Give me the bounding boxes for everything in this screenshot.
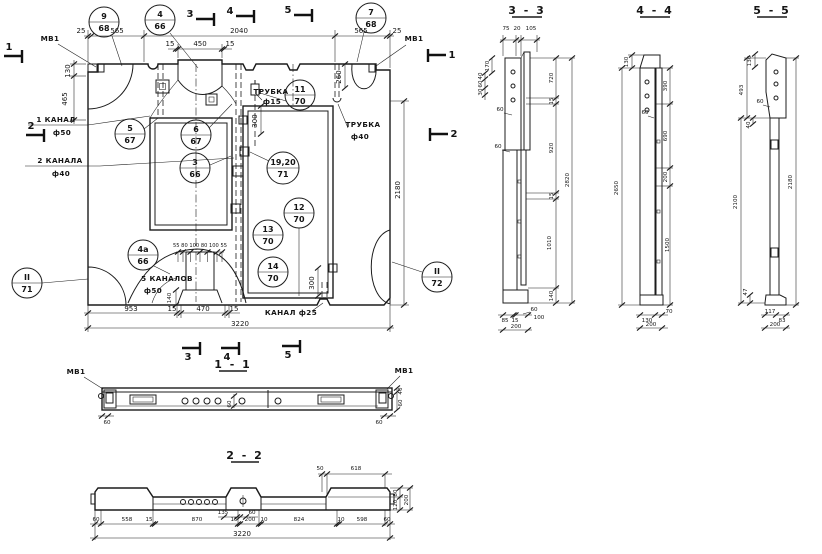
dim-15-d: 15 <box>230 305 239 313</box>
marker-left-1: 1 <box>4 42 22 63</box>
dim: 15 <box>549 97 555 105</box>
dim: 75 <box>502 26 510 32</box>
label-mv1-right: МВ1 <box>395 366 414 375</box>
section-title: 1 - 1 <box>214 358 252 371</box>
section-4-4: 4 - 4 130 60 2650 390 690 200 1500 130 7… <box>614 4 674 331</box>
callout-sheet: 70 <box>267 274 279 283</box>
dim: 30 <box>478 88 484 96</box>
callout-13-70: 13 70 <box>253 220 283 250</box>
callout-sheet: 70 <box>294 97 306 106</box>
callout-num: 6 <box>193 125 199 134</box>
marker-right-2: 2 <box>430 128 458 141</box>
dim: 870 <box>192 517 203 523</box>
dim: 690 <box>663 130 669 141</box>
marker-label: 3 <box>187 9 194 20</box>
callout-6-67: 6 67 <box>181 104 232 150</box>
dim: 2820 <box>565 172 571 187</box>
dim: 60 <box>92 517 100 523</box>
callout-num: II <box>24 273 30 282</box>
callout-sheet: 70 <box>293 215 305 224</box>
dim: 390 <box>663 80 669 91</box>
callout-sheet: 72 <box>431 279 442 288</box>
dim: 824 <box>294 517 305 523</box>
dim-15-a: 15 <box>166 40 175 48</box>
panel-outline <box>88 60 390 305</box>
dim: 15 <box>145 517 153 523</box>
label-mv1-right: МВ1 <box>405 34 424 43</box>
dim: 60 <box>103 420 111 426</box>
dim-2040: 2040 <box>230 27 248 35</box>
section-title: 3 - 3 <box>508 4 546 17</box>
dim-15-b: 15 <box>226 40 235 48</box>
dim: 140 <box>549 290 555 301</box>
plan-view: 55 80 100 80 100 55 140 25 565 2040 565 … <box>4 3 458 363</box>
dim-2180-plan: 2180 <box>394 181 402 199</box>
dim: 60 <box>496 107 504 113</box>
dim: 2180 <box>788 174 794 189</box>
callout-sheet: 66 <box>137 257 149 266</box>
marker-label: 4 <box>227 6 234 17</box>
callout-9-68: 9 68 <box>89 7 122 66</box>
callout-sheet: 66 <box>154 22 166 31</box>
dim-140: 140 <box>167 292 173 303</box>
dim: 10 <box>260 517 268 523</box>
corner-bottom-left <box>88 267 126 305</box>
marker-label: 1 <box>6 42 13 53</box>
marker-label: 2 <box>451 129 458 140</box>
dim-470: 470 <box>196 305 209 313</box>
dim: 60 <box>756 99 764 105</box>
dim: 1010 <box>547 235 553 250</box>
dim: 105 <box>526 26 537 32</box>
dim: 598 <box>357 517 368 523</box>
marker-bottom-3: 3 <box>182 342 200 363</box>
marker-label: 5 <box>285 350 292 361</box>
marker-top-3: 3 <box>187 9 214 26</box>
dim: 60 <box>478 80 484 88</box>
label-tube40-dia: ф40 <box>351 132 369 141</box>
dim: 200 <box>404 494 410 505</box>
callout-sheet: 71 <box>21 285 33 294</box>
label-canal2-dia: ф40 <box>52 169 70 178</box>
dim: 618 <box>351 466 362 472</box>
dim: 200 <box>511 324 522 330</box>
callout-num: 12 <box>293 203 304 212</box>
dim-565-left: 565 <box>110 27 123 35</box>
dim: 15 <box>230 517 238 523</box>
marker-label: 2 <box>28 121 35 132</box>
dim: 170 <box>485 60 491 71</box>
section-title: 4 - 4 <box>636 4 674 17</box>
drawing-sheet: 55 80 100 80 100 55 140 25 565 2040 565 … <box>0 0 822 554</box>
dim: 40 <box>478 72 484 80</box>
marker-top-5: 5 <box>285 5 312 22</box>
dim: 200 <box>770 322 781 328</box>
drawing-canvas: 55 80 100 80 100 55 140 25 565 2040 565 … <box>0 0 822 554</box>
callout-3-66: 3 66 <box>180 153 231 183</box>
dim: 135 <box>218 510 229 516</box>
callout-num: 5 <box>127 124 133 133</box>
anchor-bottom-right <box>371 230 390 304</box>
dim-260: 260 <box>335 70 343 83</box>
dim: 920 <box>549 142 555 153</box>
label-canal1-dia: ф50 <box>53 128 71 137</box>
marker-bottom-5: 5 <box>282 340 300 361</box>
dim: 47 <box>743 288 749 296</box>
section-5-5: 5 - 5 130 493 60 40 2100 47 2180 117 83 … <box>733 4 799 331</box>
dim: 1500 <box>665 237 671 252</box>
label-canal25: КАНАЛ ф25 <box>265 308 317 317</box>
mv1-anchor-right <box>369 64 375 72</box>
callout-num: 4а <box>138 245 149 254</box>
callout-4a-66: 4а 66 <box>128 240 170 274</box>
dim-130-left: 130 <box>64 64 72 77</box>
marker-left-2: 2 <box>26 121 44 142</box>
dim: 60 <box>641 110 649 116</box>
callout-num: 7 <box>368 8 374 17</box>
callout-num: 4 <box>157 10 163 19</box>
dim: 20 <box>513 26 521 32</box>
callout-num: 13 <box>262 225 273 234</box>
callout-num: II <box>434 267 440 276</box>
callout-sheet: 67 <box>124 136 135 145</box>
dim: 558 <box>122 517 133 523</box>
dim-3220-section: 3220 <box>233 530 251 538</box>
opening-right-inner <box>248 111 328 293</box>
marker-label: 3 <box>185 352 192 363</box>
callout-sheet: 68 <box>98 24 110 33</box>
dim: 2650 <box>614 180 620 195</box>
section-2-2: 2 - 2 50 618 80 120 200 135 60 60 558 15… <box>90 449 413 541</box>
section-3-3: 3 - 3 75 20 105 170 40 60 30 60 60 720 1… <box>478 4 575 333</box>
section-title: 2 - 2 <box>226 449 264 462</box>
callout-num: 9 <box>101 12 107 21</box>
callout-5-67: 5 67 <box>115 118 158 149</box>
dim-fan-row: 55 80 100 80 100 55 <box>173 243 227 249</box>
dim: 200 <box>245 517 256 523</box>
dim-15-c: 15 <box>168 305 177 313</box>
callout-num: 14 <box>267 262 279 271</box>
callout-1920-71: 19,20 71 <box>250 152 299 184</box>
dim: 15 <box>549 192 555 200</box>
dim: 40 <box>398 387 404 395</box>
label-tube15: ТРУБКА <box>253 87 288 96</box>
dim: 60 <box>530 307 538 313</box>
dim: 493 <box>739 84 745 95</box>
dim: 720 <box>549 72 555 83</box>
dim-3220-plan: 3220 <box>231 320 249 328</box>
dim-300-b: 300 <box>308 276 316 289</box>
dim: 70 <box>665 309 673 315</box>
dim: 200 <box>646 322 657 328</box>
dim: 40 <box>746 121 752 129</box>
callout-sheet: 67 <box>190 137 201 146</box>
callout-II-72: II 72 <box>392 262 452 292</box>
callout-II-71: II 71 <box>12 268 88 298</box>
dim: 10 <box>337 517 345 523</box>
anchor-top-right <box>352 64 376 89</box>
label-canal5-dia: ф50 <box>144 286 162 295</box>
dim: 60 <box>494 144 502 150</box>
dim: 120 <box>393 499 399 510</box>
callout-sheet: 71 <box>277 170 289 179</box>
dim-465: 465 <box>61 92 69 105</box>
callout-num: 19,20 <box>270 158 296 167</box>
dim: 200 <box>663 171 669 182</box>
marker-right-1: 1 <box>428 49 456 62</box>
dim: 60 <box>383 517 391 523</box>
dim: 60 <box>375 420 383 426</box>
dim-953: 953 <box>124 305 137 313</box>
dim: 60 <box>227 400 233 408</box>
callout-sheet: 68 <box>365 20 377 29</box>
embed-plate <box>233 166 243 176</box>
embed-plate <box>206 94 217 105</box>
callout-14-70: 14 70 <box>258 257 288 287</box>
marker-top-4: 4 <box>227 6 254 23</box>
marker-label: 1 <box>449 50 456 61</box>
dim-25-left: 25 <box>77 27 86 35</box>
dim: 60 <box>398 399 404 407</box>
label-mv1-left: МВ1 <box>41 34 60 43</box>
callout-num: 3 <box>192 158 198 167</box>
label-mv1-left: МВ1 <box>67 367 86 376</box>
section-1-1: 1 - 1 60 60 60 40 60 МВ1 МВ1 <box>67 358 414 426</box>
marker-label: 5 <box>285 5 292 16</box>
label-tube15-dia: ф15 <box>263 97 281 106</box>
dim: 50 <box>316 466 324 472</box>
label-canal1: 1 КАНАЛ <box>36 115 75 124</box>
dim-300-a: 300 <box>251 114 259 127</box>
corner-top-left <box>88 64 133 109</box>
label-canal2: 2 КАНАЛА <box>37 156 82 165</box>
label-tube40: ТРУБКА <box>345 120 380 129</box>
dim: 117 <box>765 309 776 315</box>
callout-sheet: 70 <box>262 237 274 246</box>
label-canal5: 5 КАНАЛОВ <box>141 274 193 283</box>
callout-num: 11 <box>294 85 306 94</box>
dim: 2100 <box>733 194 739 209</box>
lifting-block <box>178 60 222 94</box>
dim: 60 <box>248 510 256 516</box>
callout-sheet: 66 <box>189 170 201 179</box>
dim: 85 <box>501 318 509 324</box>
section-title: 5 - 5 <box>753 4 791 17</box>
dim-450: 450 <box>193 40 206 48</box>
dim-25-right: 25 <box>393 27 402 35</box>
dim: 100 <box>534 315 545 321</box>
dim: 80 <box>393 489 399 497</box>
